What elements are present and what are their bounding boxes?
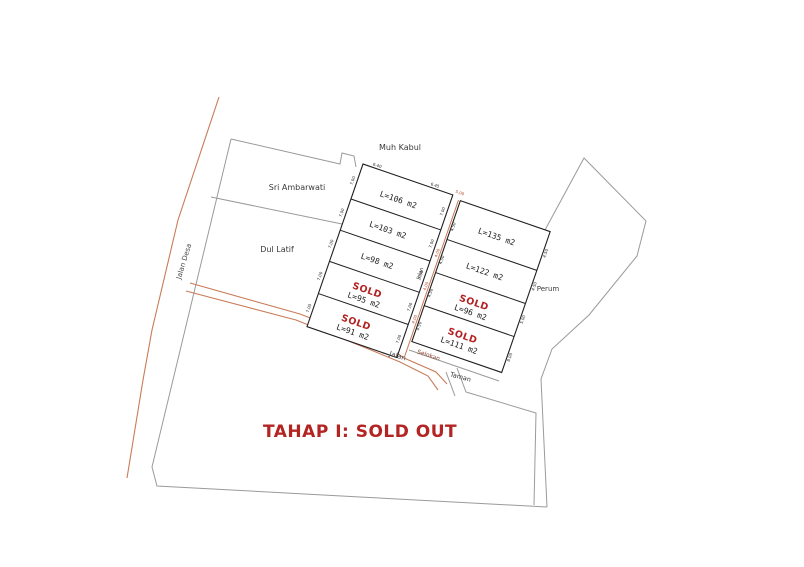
site-plan-page: L=106 m2 L=103 m2 L=98 m2 SOLD L=95 m2 S… — [0, 0, 804, 567]
neighbor-label-north: Muh Kabul — [379, 143, 421, 152]
village-road-label: Jalan Desa — [175, 243, 194, 282]
dimension-label: 7.00 — [327, 238, 335, 248]
dimension-label: 7.00 — [305, 303, 313, 313]
site-boundary-north — [231, 139, 356, 167]
phase-title: TAHAP I: SOLD OUT — [263, 422, 457, 442]
dimension-label: 7.00 — [349, 175, 357, 185]
neighbor-label-west: Dul Latif — [260, 245, 294, 254]
tahap-area-east-line — [466, 392, 536, 505]
site-plan-svg: L=106 m2 L=103 m2 L=98 m2 SOLD L=95 m2 S… — [0, 0, 804, 567]
dimension-label: 7.00 — [316, 271, 324, 281]
neighbor-divider-ambarwati-latif — [211, 197, 342, 224]
dimension-label: 5.00 — [455, 189, 465, 197]
dimension-label: 7.00 — [338, 207, 346, 217]
park-label: Taman — [448, 370, 472, 384]
neighbor-label-northwest: Sri Ambarwati — [269, 183, 325, 192]
neighbor-label-east: Perum — [537, 285, 560, 293]
site-boundary-east — [541, 158, 646, 507]
